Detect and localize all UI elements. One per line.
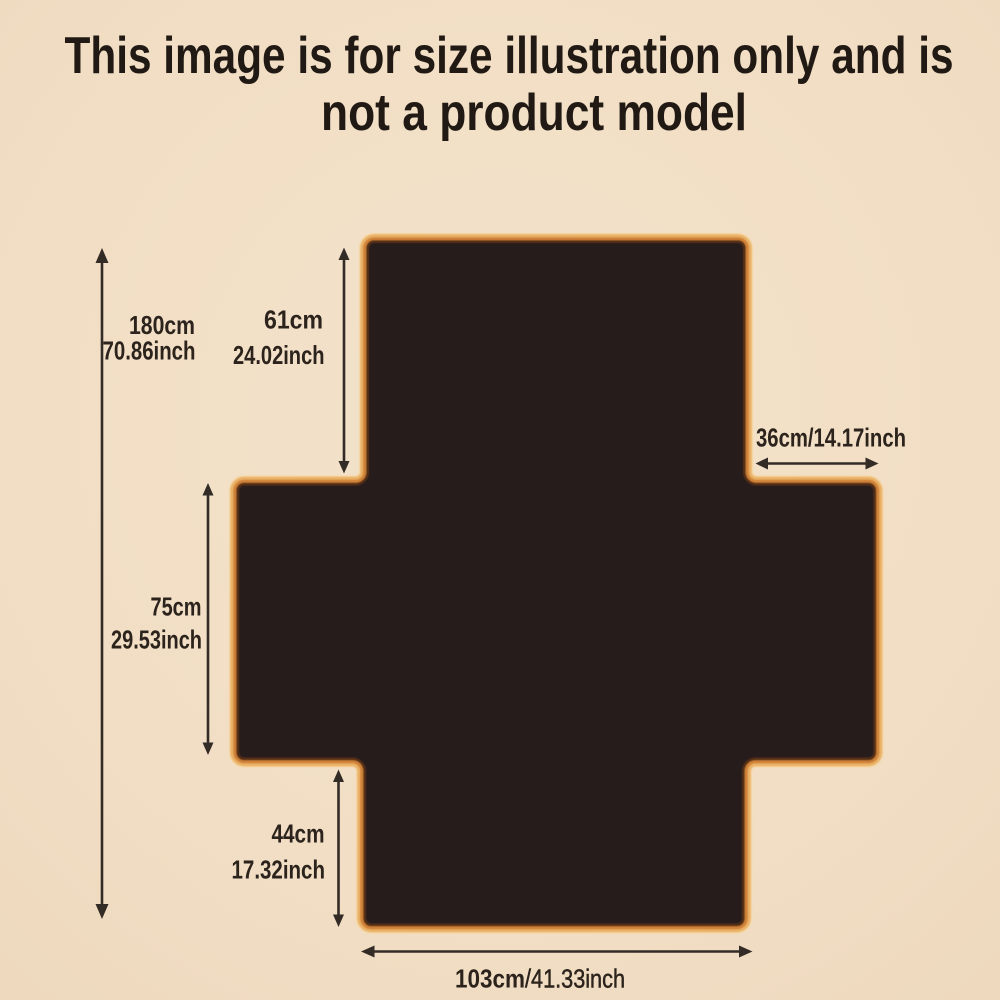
svg-text:29.53inch: 29.53inch <box>111 625 202 655</box>
svg-text:75cm: 75cm <box>151 592 202 622</box>
svg-text:17.32inch: 17.32inch <box>232 855 326 885</box>
svg-text:61cm: 61cm <box>264 305 323 335</box>
svg-text:70.86inch: 70.86inch <box>103 336 196 366</box>
svg-text:36cm/14.17inch: 36cm/14.17inch <box>756 423 906 453</box>
svg-text:24.02inch: 24.02inch <box>233 340 325 370</box>
svg-text:103cm: 103cm <box>455 964 525 994</box>
svg-text:This image is for size illustr: This image is for size illustration only… <box>65 26 954 84</box>
svg-text:/41.33inch: /41.33inch <box>525 964 625 994</box>
svg-text:not a product model: not a product model <box>321 83 747 141</box>
svg-text:44cm: 44cm <box>272 819 325 849</box>
